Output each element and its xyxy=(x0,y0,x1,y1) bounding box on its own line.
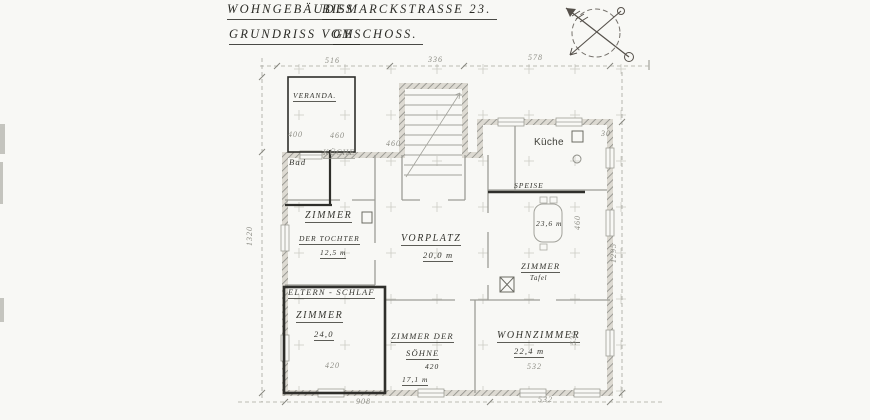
label-dim-908: 908 xyxy=(356,398,371,406)
label-wohnzimmer: WOHNZIMMER xyxy=(497,331,580,343)
label-area-tochter: 12,5 m xyxy=(320,249,346,259)
label-dim-400: 400 xyxy=(288,131,303,139)
label-area-wohnzimmer: 22,4 m xyxy=(514,347,544,358)
label-zimmer-speise: ZIMMER xyxy=(521,262,560,273)
label-bad: Bad xyxy=(289,158,306,167)
label-dim-1320: 1320 xyxy=(246,226,254,246)
floor-plan-scan: WOHNGEBÄUDES BISMARCKSTRASSE 23. GRUNDRI… xyxy=(0,0,870,420)
label-area-eltern: 24,0 xyxy=(314,330,334,341)
registration-grid xyxy=(258,50,654,410)
label-tafel: Tafel xyxy=(530,276,547,283)
label-dim-578: 578 xyxy=(528,54,543,62)
label-kueche: Küche xyxy=(534,138,564,148)
label-dim-30: 30 xyxy=(601,130,611,138)
label-dim-532-wohn: 532 xyxy=(527,363,542,371)
label-dim-1295: 1295 xyxy=(610,243,618,263)
label-dim-535: 535 xyxy=(570,330,578,345)
label-eltern-schlaf: ELTERN - SCHLAF xyxy=(288,288,375,299)
label-dim-460-speise: 460 xyxy=(574,215,582,230)
label-dim-460: 460 xyxy=(330,132,345,140)
label-area-soehne: 17,1 m xyxy=(402,376,428,386)
label-dim-532-bottom: 532 xyxy=(538,396,553,404)
label-zimmer-tochter: ZIMMER xyxy=(305,211,352,223)
label-dim-516: 516 xyxy=(325,57,340,65)
label-area-vorplatz: 20,0 m xyxy=(423,251,453,262)
label-vorplatz: VORPLATZ xyxy=(401,234,461,246)
label-der-tochter: DER TOCHTER xyxy=(299,235,360,245)
label-veranda: VERANDA. xyxy=(293,92,336,102)
label-area-speise: 23,6 m xyxy=(536,220,562,228)
label-dim-420-eltern: 420 xyxy=(325,362,340,370)
label-zimmer-der: ZIMMER DER xyxy=(391,332,454,343)
label-zimmer-eltern: ZIMMER xyxy=(296,311,343,323)
label-dim-460b: 460 xyxy=(386,140,401,148)
label-dim-336: 336 xyxy=(428,56,443,64)
label-dim-420-soehne: 420 xyxy=(425,363,439,371)
label-kueche-faint: KÜCHE xyxy=(323,149,355,159)
label-speise: SPEISE xyxy=(514,182,544,192)
label-soehne: SÖHNE xyxy=(406,349,439,360)
